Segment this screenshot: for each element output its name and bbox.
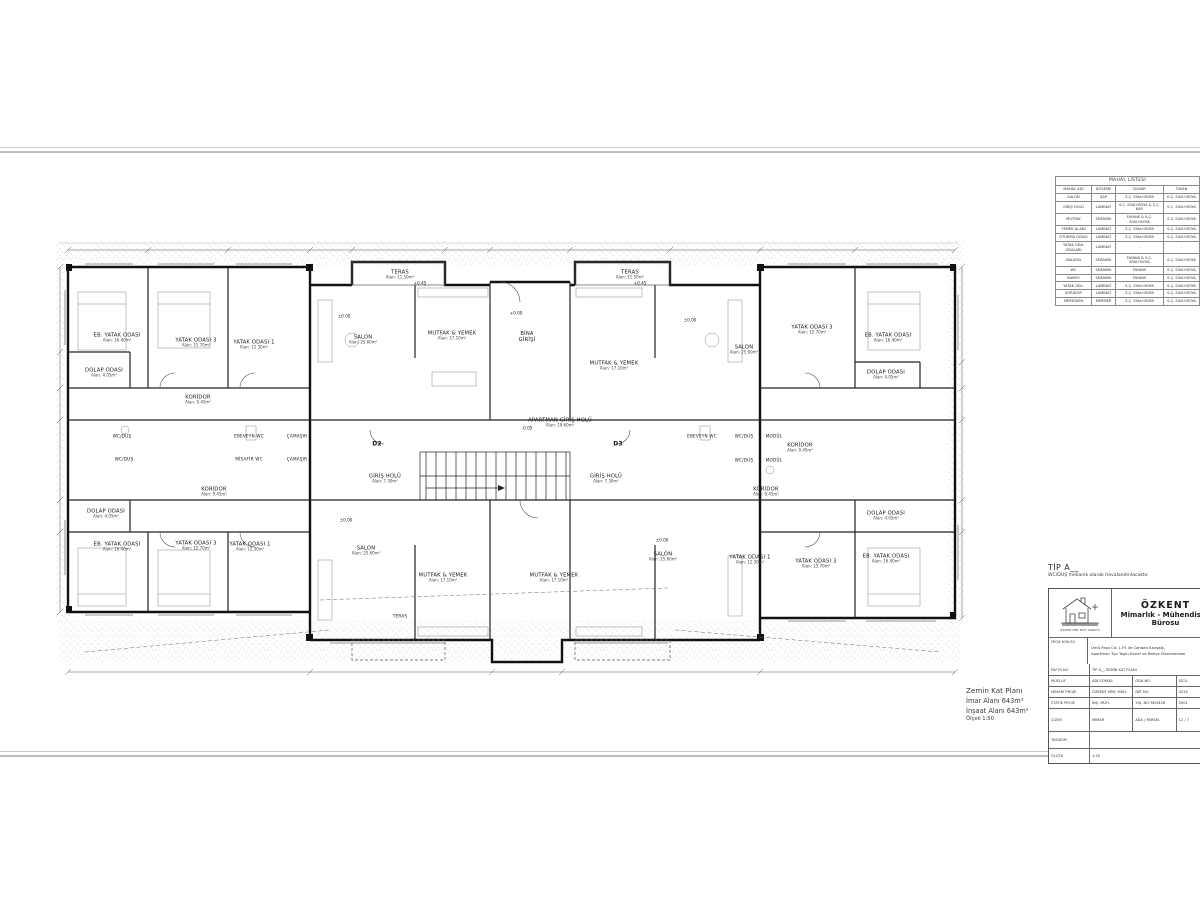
title-block-row: TASARIM <box>1049 731 1200 748</box>
title-block-row-label: STATİK PROJE <box>1049 698 1090 708</box>
finish-cell: S.Ç. SIVA+BOYA <box>1116 282 1164 290</box>
title-block-row-label: MİMARİ PROJE <box>1049 687 1090 697</box>
finish-cell: FAYANS <box>1116 274 1164 282</box>
tip-heading: TİP A__ <box>1048 563 1200 572</box>
finish-column-header: DÖŞEME <box>1092 185 1116 193</box>
finish-cell: LAMİNAT <box>1092 290 1116 298</box>
finish-cell: SERAMİK <box>1092 274 1116 282</box>
title-block-row-label: ÖLÇEK <box>1049 749 1090 763</box>
title-block-row-value: MİMAR <box>1090 709 1133 731</box>
finish-schedule-table: MAHAL LİSTESİ MAHAL ADIDÖŞEMEDUVARTAVAN … <box>1055 176 1200 306</box>
title-block-row-value: ODA NO <box>1133 676 1176 686</box>
finish-cell: GİRİŞ HOLÜ <box>1056 201 1092 213</box>
finish-row: YATAK ODL.LAMİNATS.Ç. SIVA+BOYAS.Ç. SIVA… <box>1056 282 1200 290</box>
title-block-row-value: SİCİL <box>1177 676 1200 686</box>
finish-column-header: DUVAR <box>1116 185 1164 193</box>
finish-schedule-header: MAHAL ADIDÖŞEMEDUVARTAVAN <box>1056 185 1200 193</box>
finish-cell: MERMER <box>1092 298 1116 306</box>
finish-cell: S.Ç. SIVA+BOYA <box>1164 226 1200 234</box>
finish-cell: BANYO <box>1056 274 1092 282</box>
project-label: PROJE KONUSU <box>1049 638 1088 664</box>
finish-cell: SALON <box>1056 193 1092 201</box>
finish-cell: LAMİNAT <box>1092 201 1116 213</box>
finish-cell: YATAK ODL. <box>1056 282 1092 290</box>
terrace-outlines <box>352 262 670 660</box>
finish-cell: WC <box>1056 266 1092 274</box>
finish-cell: S.Ç. SIVA+BOYA <box>1116 298 1164 306</box>
finish-row: MERDİVENMERMERS.Ç. SIVA+BOYAS.Ç. SIVA+BO… <box>1056 298 1200 306</box>
finish-cell: OTURMA ODASI <box>1056 234 1092 242</box>
title-block-row-label: PAFTA NO <box>1049 664 1090 675</box>
firm-name-line3: Bürosu <box>1152 619 1180 627</box>
plan-title: Zemin Kat Planı <box>966 686 1028 695</box>
finish-cell: LAMİNAT <box>1092 234 1116 242</box>
exterior-walls <box>68 262 955 662</box>
firm-name: ÖZKENT Mimarlık - Mühendislik Bürosu <box>1112 589 1200 637</box>
finish-cell: MERDİVEN <box>1056 298 1092 306</box>
finish-row: WCSERAMİKFAYANSS.Ç. SIVA+BOYA <box>1056 266 1200 274</box>
firm-name-line1: ÖZKENT <box>1141 600 1190 611</box>
title-block-row: MÜELLİFADI SOYADIODA NOSİCİL <box>1049 675 1200 686</box>
title-block-row-value: 1:50 <box>1090 749 1200 763</box>
title-block-row-value: DİP. NO <box>1133 687 1176 697</box>
title-block-row-value: Y.İŞ. NO 96/3428 <box>1133 698 1176 708</box>
title-block-row: PAFTA NOTİP A__ ZEMİN KAT PLANI <box>1049 664 1200 675</box>
floor-plan-drawing <box>0 0 1200 900</box>
title-block-row-value: İNŞ. MÜH. <box>1090 698 1133 708</box>
scale-note: Ölçek 1:50 <box>966 716 1028 722</box>
finish-cell: S.Ç. SIVA+BOYA <box>1116 193 1164 201</box>
finish-cell: K.Ç. SIVA+BOYA <box>1164 193 1200 201</box>
finish-row: GİRİŞ HOLÜLAMİNATS.Ç. SIVA+BOYA & Ç.Ç. K… <box>1056 201 1200 213</box>
finish-cell: S.Ç. SIVA+BOYA & Ç.Ç. KAP. <box>1116 201 1164 213</box>
stairs <box>420 452 570 500</box>
title-block-row-value: ÖZKENT MİM. MÜH. <box>1090 687 1133 697</box>
finish-schedule-title: MAHAL LİSTESİ <box>1056 177 1200 186</box>
logo-caption: ÖZKENT MİM. MÜH. KONUTU <box>1060 628 1100 632</box>
finish-cell: LAMİNAT <box>1092 226 1116 234</box>
finish-row: OTURMA ODASILAMİNATS.Ç. SIVA+BOYAS.Ç. SI… <box>1056 234 1200 242</box>
firm-logo: ÖZKENT MİM. MÜH. KONUTU <box>1049 589 1112 637</box>
finish-cell: - <box>1116 242 1164 254</box>
title-block-row-value: TİP A__ ZEMİN KAT PLANI <box>1090 664 1200 675</box>
project-row: PROJE KONUSU Ümit Paşa Cd. L.F5 ile Cand… <box>1049 637 1200 664</box>
imar-area: İmar Alanı 643m² <box>966 697 1028 705</box>
project-description: Ümit Paşa Cd. L.F5 ile Candan Kavşağı, A… <box>1088 638 1200 664</box>
finish-cell: - <box>1164 242 1200 254</box>
title-block-row: STATİK PROJEİNŞ. MÜH.Y.İŞ. NO 96/3428200… <box>1049 697 1200 708</box>
finish-cell: BALKON <box>1056 254 1092 266</box>
interior-walls <box>68 267 955 640</box>
finish-cell: MUTFAK <box>1056 213 1092 225</box>
finish-column-header: TAVAN <box>1164 185 1200 193</box>
title-block-row-value: 2001 <box>1177 698 1200 708</box>
finish-cell: S.Ç. SIVA+BOYA <box>1116 234 1164 242</box>
finish-cell: FAYANS <box>1116 266 1164 274</box>
finish-column-header: MAHAL ADI <box>1056 185 1092 193</box>
tip-note-block: TİP A__ WC/DUŞ mekanik olarak havalandır… <box>1048 563 1200 578</box>
finish-cell: YATAK ODA. ODALARI <box>1056 242 1092 254</box>
finish-cell: ŞAP <box>1092 193 1116 201</box>
finish-cell: LAMİNAT <box>1092 282 1116 290</box>
finish-row: YATAK ODA. ODALARILAMİNAT-- <box>1056 242 1200 254</box>
tip-note-text: WC/DUŞ mekanik olarak havalandırılacaktı… <box>1048 573 1200 578</box>
title-block: ÖZKENT MİM. MÜH. KONUTU ÖZKENT Mimarlık … <box>1048 588 1200 764</box>
title-block-row-value: ADI SOYADI <box>1090 676 1133 686</box>
finish-cell: S.Ç. SIVA+BOYA <box>1164 290 1200 298</box>
drawing-sheet: EB. YATAK ODASIAlan: 16.40m²YATAK ODASI … <box>0 0 1200 900</box>
finish-cell: S.Ç. SIVA+BOYA <box>1164 266 1200 274</box>
title-block-row-value: ADA / PARSEL <box>1133 709 1176 731</box>
finish-row: SALONŞAPS.Ç. SIVA+BOYAK.Ç. SIVA+BOYA <box>1056 193 1200 201</box>
finish-cell: YEMEK ALANI <box>1056 226 1092 234</box>
finish-cell: LAMİNAT <box>1092 242 1116 254</box>
finish-cell: S.Ç. SIVA+BOYA <box>1164 274 1200 282</box>
title-block-row-label: MÜELLİF <box>1049 676 1090 686</box>
title-block-row: ÖLÇEK1:50 <box>1049 748 1200 763</box>
title-block-header: ÖZKENT MİM. MÜH. KONUTU ÖZKENT Mimarlık … <box>1049 589 1200 637</box>
furniture <box>78 288 920 636</box>
finish-cell: S.Ç. SIVA+BOYA <box>1164 213 1200 225</box>
title-block-row-label: TASARIM <box>1049 732 1090 748</box>
finish-cell: SERAMİK <box>1092 266 1116 274</box>
title-block-row: MİMARİ PROJEÖZKENT MİM. MÜH.DİP. NO4215 <box>1049 686 1200 697</box>
finish-cell: S.Ç. SIVA+BOYA <box>1164 234 1200 242</box>
house-logo-icon <box>1059 595 1101 627</box>
finish-cell: S.Ç. SIVA+BOYA <box>1164 254 1200 266</box>
project-line2: Apartman Tipi Toplu Konut ve Bahçe Düzen… <box>1091 651 1200 657</box>
finish-cell: S.Ç. SIVA+BOYA <box>1164 282 1200 290</box>
plan-info: Zemin Kat Planı İmar Alanı 643m² İnşaat … <box>966 686 1028 722</box>
title-block-row-label: ÇİZEN <box>1049 709 1090 731</box>
insaat-area: İnşaat Alanı 643m² <box>966 707 1028 715</box>
finish-cell: KORİDOR <box>1056 290 1092 298</box>
title-block-row-value <box>1090 732 1200 748</box>
finish-cell: S.Ç. SIVA+BOYA <box>1116 290 1164 298</box>
finish-cell: S.Ç. SIVA+BOYA <box>1164 298 1200 306</box>
finish-row: BANYOSERAMİKFAYANSS.Ç. SIVA+BOYA <box>1056 274 1200 282</box>
finish-schedule: MAHAL LİSTESİ MAHAL ADIDÖŞEMEDUVARTAVAN … <box>1055 176 1199 306</box>
finish-cell: SERAMİK <box>1092 254 1116 266</box>
title-block-rows: PAFTA NOTİP A__ ZEMİN KAT PLANIMÜELLİFAD… <box>1049 664 1200 763</box>
structural-columns <box>66 264 956 641</box>
window-lines <box>65 264 958 643</box>
finish-cell: S.Ç. SIVA+BOYA <box>1164 201 1200 213</box>
title-block-row: ÇİZENMİMARADA / PARSEL12 / 7 <box>1049 708 1200 731</box>
finish-row: KORİDORLAMİNATS.Ç. SIVA+BOYAS.Ç. SIVA+BO… <box>1056 290 1200 298</box>
finish-row: YEMEK ALANILAMİNATS.Ç. SIVA+BOYAS.Ç. SIV… <box>1056 226 1200 234</box>
finish-cell: FAYANS & S.Ç. SIVA+BOYA <box>1116 213 1164 225</box>
finish-cell: S.Ç. SIVA+BOYA <box>1116 226 1164 234</box>
finish-row: MUTFAKSERAMİKFAYANS & S.Ç. SIVA+BOYAS.Ç.… <box>1056 213 1200 225</box>
finish-cell: FAYANS & S.Ç. SIVA+BOYA <box>1116 254 1164 266</box>
finish-row: BALKONSERAMİKFAYANS & S.Ç. SIVA+BOYAS.Ç.… <box>1056 254 1200 266</box>
finish-cell: SERAMİK <box>1092 213 1116 225</box>
title-block-row-value: 4215 <box>1177 687 1200 697</box>
title-block-row-value: 12 / 7 <box>1177 709 1200 731</box>
firm-name-line2: Mimarlık - Mühendislik <box>1121 611 1200 619</box>
